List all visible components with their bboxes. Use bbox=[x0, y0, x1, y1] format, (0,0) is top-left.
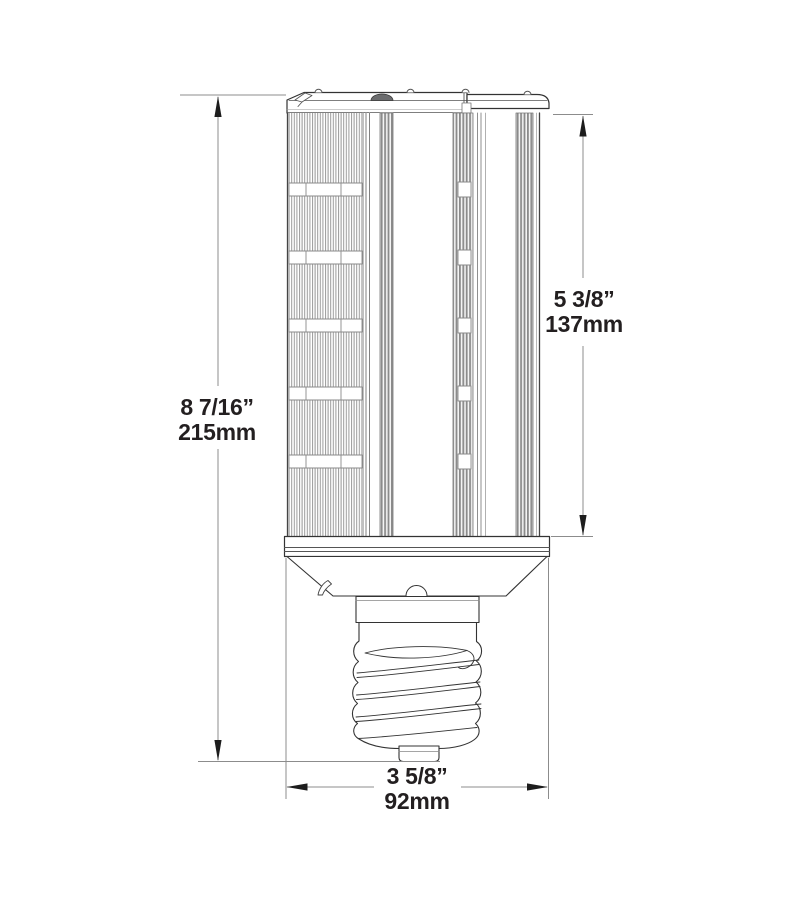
arrowhead-down bbox=[579, 515, 586, 536]
collar-disc bbox=[285, 537, 550, 557]
arrowhead-right bbox=[527, 783, 548, 790]
cap-screw-bump-4 bbox=[524, 91, 531, 94]
arrowhead-down bbox=[214, 740, 221, 761]
led-panel-gap-band bbox=[289, 455, 362, 468]
led-window bbox=[458, 250, 471, 265]
contact-tip bbox=[399, 746, 439, 762]
arrowhead-left bbox=[287, 783, 308, 790]
led-panel-gap-band bbox=[289, 387, 362, 400]
cap-right-section bbox=[467, 95, 549, 109]
lamp-cap bbox=[287, 89, 549, 113]
cap-screw-bump-2 bbox=[407, 89, 414, 92]
overall-height-label-in: 8 7/16” bbox=[180, 394, 253, 420]
lamp-body bbox=[287, 113, 540, 537]
lamp-collar bbox=[285, 537, 550, 557]
led-window bbox=[458, 182, 471, 197]
arrowhead-up bbox=[579, 116, 586, 137]
arrowhead-up bbox=[214, 96, 221, 117]
lamp-drawing bbox=[285, 89, 550, 761]
base-housing bbox=[287, 557, 547, 623]
overall-height-label-mm: 215mm bbox=[178, 419, 256, 445]
led-panel-gap-band bbox=[289, 251, 362, 264]
screw-outline bbox=[352, 623, 481, 749]
led-window bbox=[458, 386, 471, 401]
led-panel-gap-band bbox=[289, 183, 362, 196]
base-width-label-in: 3 5/8” bbox=[387, 763, 448, 789]
drawing-page: 8 7/16” 215mm 5 3/8” 137mm 3 5/8” 92mm bbox=[0, 0, 800, 900]
cap-seam-tab bbox=[462, 103, 471, 113]
led-window bbox=[458, 454, 471, 469]
rib-strip-right bbox=[516, 113, 533, 537]
rib-strip-left bbox=[380, 113, 393, 537]
body-height-label-in: 5 3/8” bbox=[554, 286, 615, 312]
base-width-label-mm: 92mm bbox=[384, 788, 449, 814]
lamp-dimension-diagram: 8 7/16” 215mm 5 3/8” 137mm 3 5/8” 92mm bbox=[0, 0, 800, 900]
led-window bbox=[458, 318, 471, 333]
cap-screw-bump-1 bbox=[315, 89, 322, 92]
body-height-label-mm: 137mm bbox=[545, 311, 623, 337]
screw-base bbox=[352, 623, 481, 762]
led-panel-gap-band bbox=[289, 319, 362, 332]
cap-screw-bump-3 bbox=[462, 89, 469, 92]
dimension-body-height: 5 3/8” 137mm bbox=[545, 115, 623, 537]
